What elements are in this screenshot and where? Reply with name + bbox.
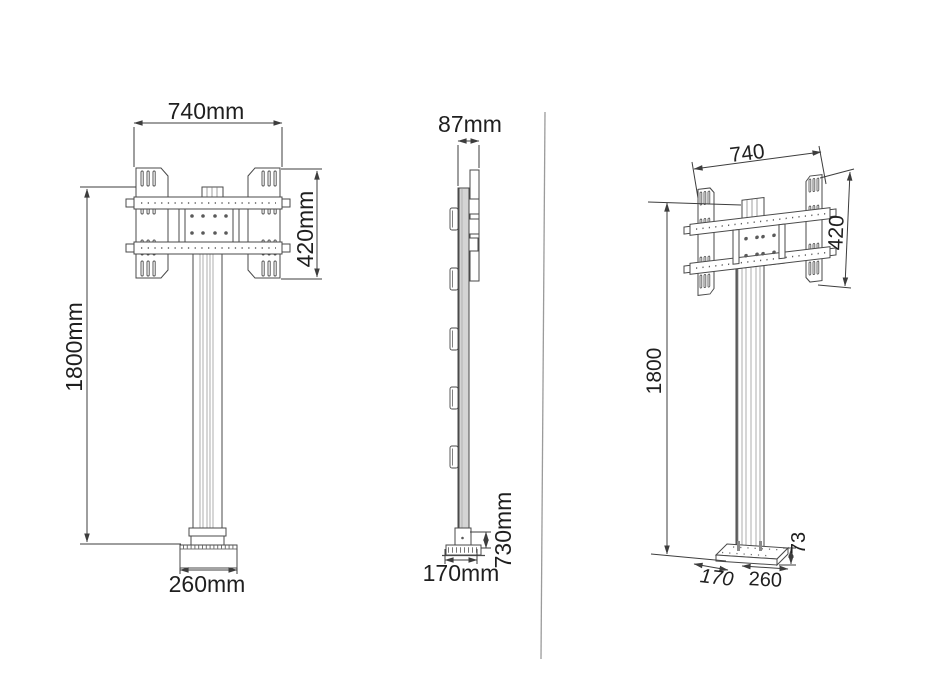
persp-vesa-strap-right — [779, 224, 785, 259]
cable-clip — [450, 387, 458, 409]
side-spacer-block — [468, 219, 479, 234]
front-column — [193, 248, 222, 528]
front-width-dimension — [134, 123, 282, 167]
side-collar — [455, 528, 471, 545]
persp-vesa-strap-left — [733, 230, 739, 265]
drawing-sheet: 740mm 420mm 1800mm 260mm — [0, 0, 930, 698]
front-view: 740mm 420mm 1800mm 260mm — [61, 98, 322, 597]
side-cable-clips — [450, 208, 458, 468]
persp-rail-stub — [684, 226, 690, 234]
front-rail-stub — [282, 244, 290, 252]
front-rail-stub — [126, 199, 134, 207]
side-depth-label: 87mm — [438, 111, 502, 137]
persp-base-width-label: 260 — [748, 568, 782, 592]
persp-bracket-height-label: 420 — [824, 215, 848, 251]
side-base-height-label: 730mm — [490, 492, 516, 569]
persp-rail-stub — [684, 265, 690, 273]
front-bracket-height-label: 420mm — [292, 191, 318, 268]
front-rail-stub — [282, 199, 290, 207]
side-base — [446, 545, 481, 555]
cable-clip — [450, 268, 458, 290]
front-vesa-strap-right — [233, 209, 239, 242]
persp-column-foot-mark — [759, 541, 762, 551]
side-base-depth-label: 170mm — [423, 560, 500, 586]
front-collar-top — [189, 528, 226, 536]
front-rail-stub — [126, 244, 134, 252]
side-column — [458, 188, 469, 528]
persp-structure — [684, 173, 836, 565]
perspective-view: 740 420 1800 73 170 260 — [643, 140, 854, 592]
persp-column-foot-mark — [737, 541, 740, 551]
front-base — [180, 545, 237, 568]
side-spacer-block — [469, 238, 478, 251]
front-collar — [191, 536, 224, 545]
persp-width-label: 740 — [728, 140, 766, 167]
persp-height-label: 1800 — [643, 348, 666, 395]
persp-base-height-label: 73 — [788, 532, 810, 554]
persp-right-plate — [806, 175, 822, 283]
persp-base-depth-label: 170 — [699, 565, 735, 591]
front-vesa-strap-left — [179, 209, 185, 242]
cable-clip — [450, 328, 458, 350]
side-spacer-block — [468, 199, 479, 214]
technical-drawing: 740mm 420mm 1800mm 260mm — [0, 0, 930, 698]
front-vesa-plate — [179, 204, 239, 248]
front-base-width-label: 260mm — [169, 571, 246, 597]
view-divider-line — [541, 112, 545, 659]
side-view: 87mm 730mm 170mm — [423, 111, 516, 586]
front-dimensions: 740mm 420mm 1800mm 260mm — [61, 98, 322, 597]
side-structure — [442, 170, 485, 556]
front-width-label: 740mm — [168, 98, 245, 124]
side-collar-bolt — [461, 537, 464, 540]
front-height-label: 1800mm — [61, 302, 87, 391]
cable-clip — [450, 208, 458, 230]
cable-clip — [450, 446, 458, 468]
front-structure — [126, 168, 290, 568]
